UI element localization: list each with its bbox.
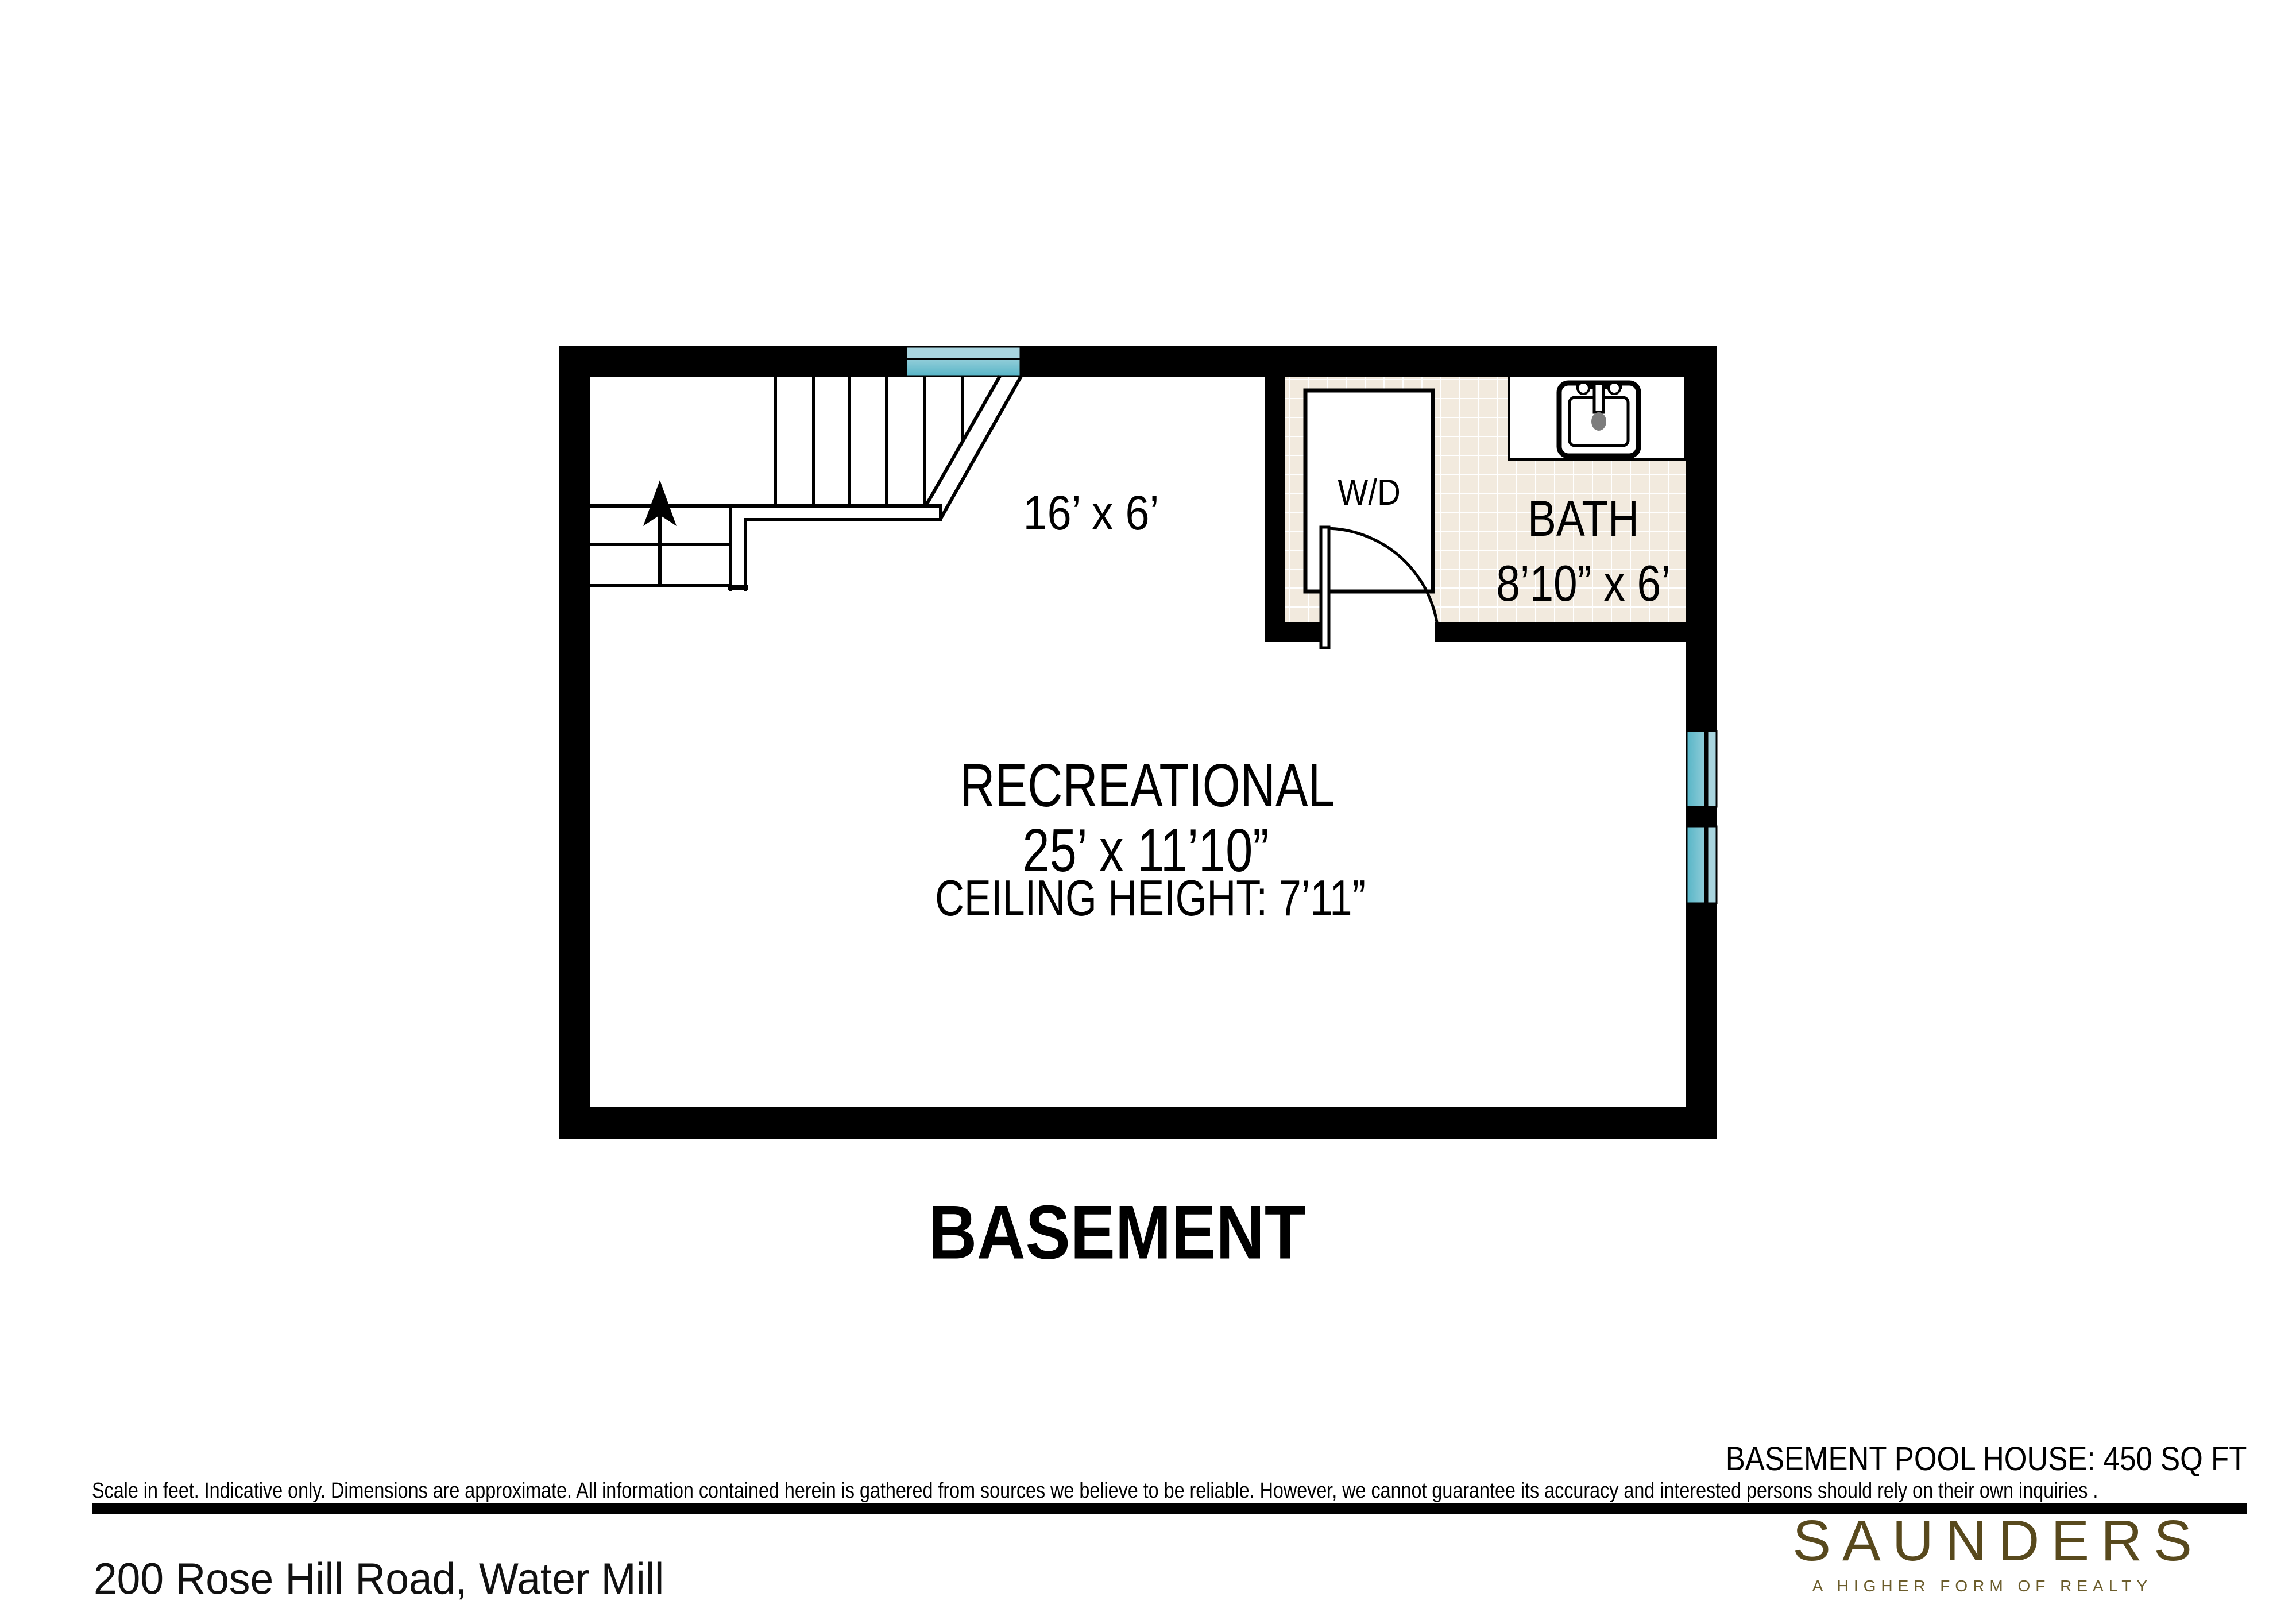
property-address: 200 Rose Hill Road, Water Mill [94, 1557, 664, 1602]
window-marker-right-1 [1687, 731, 1717, 807]
disclaimer-text: Scale in feet. Indicative only. Dimensio… [92, 1480, 2098, 1502]
area-summary: BASEMENT POOL HOUSE: 450 SQ FT [1725, 1443, 2247, 1476]
stair-winders [926, 377, 1021, 519]
staircase [590, 377, 1021, 590]
stair-treads [775, 377, 963, 506]
stair-handrail [730, 506, 941, 590]
ceiling-height-label: CEILING HEIGHT: 7’11” [935, 873, 1366, 923]
stairs-dims-label: 16’ x 6’ [1023, 489, 1159, 537]
door-leaf [1321, 527, 1329, 648]
washer-dryer-label: W/D [1338, 474, 1400, 511]
floorplan-page: 16’ x 6’ W/D BATH 8’10” x 6’ RECREATIONA… [0, 0, 2296, 1624]
brand-tagline: A HIGHER FORM OF REALTY [1812, 1578, 2152, 1594]
bath-dims-label: 8’10” x 6’ [1496, 558, 1671, 609]
room-name-label: RECREATIONAL [960, 755, 1335, 816]
floor-title: BASEMENT [929, 1195, 1306, 1271]
lower-steps [590, 515, 730, 586]
window-marker-right-2 [1687, 826, 1717, 903]
window-marker-top [906, 347, 1021, 376]
brand-logo: SAUNDERS [1792, 1512, 2204, 1569]
bath-name-label: BATH [1528, 493, 1639, 544]
sink-icon [1559, 382, 1638, 456]
